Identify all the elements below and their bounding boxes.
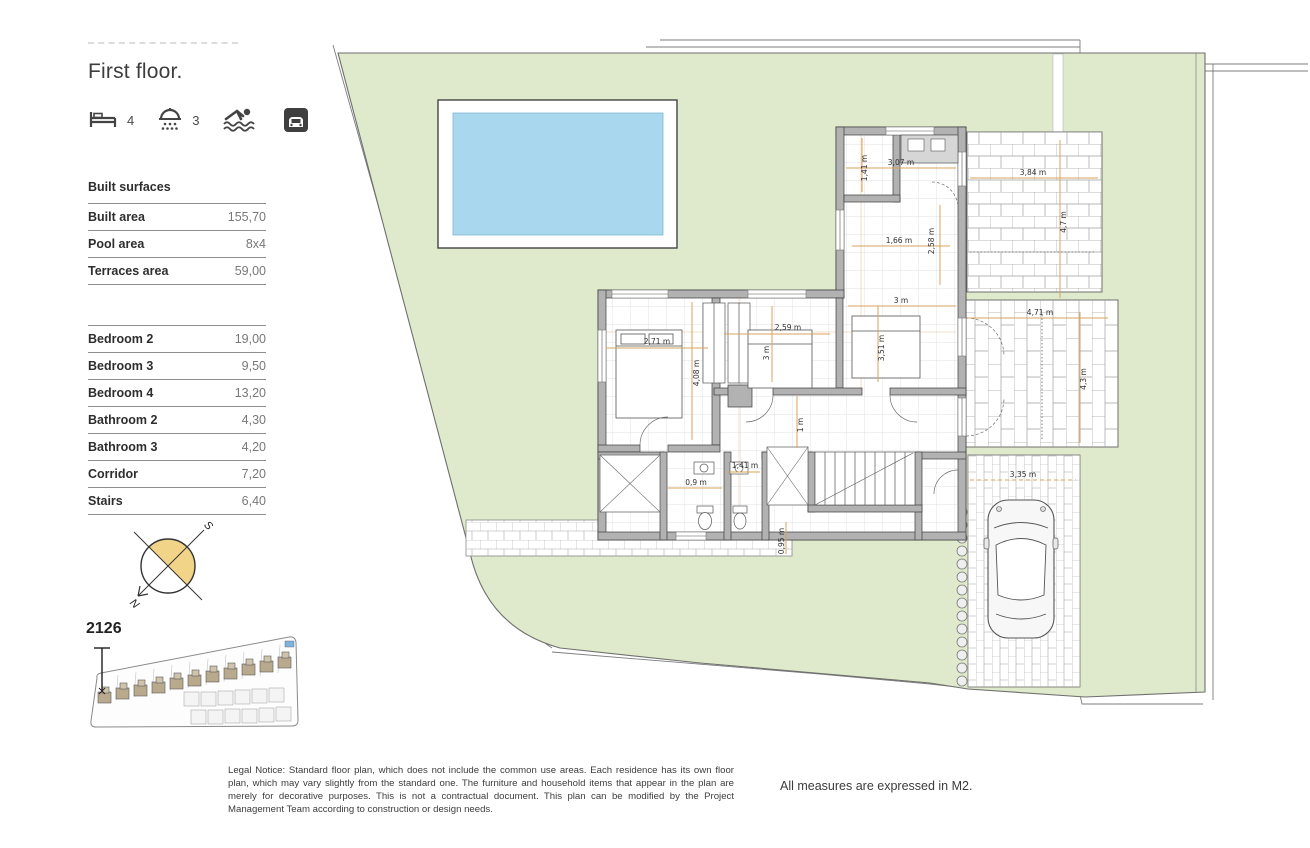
dimension-label: 4,7 m xyxy=(1059,211,1068,233)
row-value: 6,40 xyxy=(242,494,266,508)
dimension-label: 4,3 m xyxy=(1079,368,1088,390)
table-row: Corridor 7,20 xyxy=(88,460,266,487)
table-row: Terraces area 59,00 xyxy=(88,257,266,285)
dimension-label: 3 m xyxy=(762,346,771,360)
table-row: Bedroom 3 9,50 xyxy=(88,352,266,379)
boundary-wall-strip xyxy=(1053,54,1063,132)
row-label: Bedroom 4 xyxy=(88,386,153,400)
shower-icon xyxy=(157,106,183,134)
table-row: Bedroom 2 19,00 xyxy=(88,325,266,352)
row-label: Bathroom 3 xyxy=(88,440,157,454)
table-row: Pool area 8x4 xyxy=(88,230,266,257)
row-value: 4,30 xyxy=(242,413,266,427)
table-row: Bathroom 3 4,20 xyxy=(88,433,266,460)
compass-rose: S N xyxy=(118,514,222,624)
row-value: 4,20 xyxy=(242,440,266,454)
dimension-label: 1,41 m xyxy=(860,155,869,181)
built-surfaces-table: Built area 155,70 Pool area 8x4 Terraces… xyxy=(88,203,266,285)
table-row: Bedroom 4 13,20 xyxy=(88,379,266,406)
row-label: Built area xyxy=(88,210,145,224)
row-value: 7,20 xyxy=(242,467,266,481)
garage-icon xyxy=(283,107,309,133)
row-label: Bedroom 3 xyxy=(88,359,153,373)
row-value: 8x4 xyxy=(246,237,266,251)
scan-artifact-line xyxy=(88,42,238,44)
dimension-label: 2,71 m xyxy=(644,337,670,346)
legal-notice: Legal Notice: Standard floor plan, which… xyxy=(228,765,734,816)
row-value: 59,00 xyxy=(235,264,266,278)
row-value: 9,50 xyxy=(242,359,266,373)
pool-water xyxy=(453,113,663,235)
bathrooms-count: 3 xyxy=(192,113,199,128)
bedrooms-count: 4 xyxy=(127,113,134,128)
dimension-label: 4,08 m xyxy=(692,360,701,386)
row-label: Bedroom 2 xyxy=(88,332,153,346)
dimension-label: 3 m xyxy=(894,296,908,305)
terrace-top xyxy=(967,132,1102,292)
dimension-label: 1,41 m xyxy=(732,461,758,470)
dimension-label: 2,58 m xyxy=(927,228,936,254)
compass-north-label: N xyxy=(127,597,141,611)
stairs xyxy=(815,452,915,505)
row-value: 155,70 xyxy=(228,210,266,224)
dimension-label: 1,66 m xyxy=(886,236,912,245)
dimension-label: 0,9 m xyxy=(685,478,707,487)
site-pool-marker xyxy=(285,641,294,647)
dimension-label: 1 m xyxy=(796,418,805,432)
site-plan xyxy=(78,634,314,738)
dimension-label: 3,51 m xyxy=(877,335,886,361)
bed-icon xyxy=(88,108,118,132)
swimming-pool-icon xyxy=(222,107,256,133)
dimension-label: 3,84 m xyxy=(1020,168,1046,177)
row-label: Terraces area xyxy=(88,264,168,278)
table-row: Bathroom 2 4,30 xyxy=(88,406,266,433)
car xyxy=(984,500,1058,638)
measures-note: All measures are expressed in M2. xyxy=(780,779,972,793)
row-label: Bathroom 2 xyxy=(88,413,157,427)
dimension-label: 4,71 m xyxy=(1027,308,1053,317)
dimension-label: 3,07 m xyxy=(888,158,914,167)
rooms-table: Bedroom 2 19,00 Bedroom 3 9,50 Bedroom 4… xyxy=(88,325,266,515)
dimension-label: 3,35 m xyxy=(1010,470,1036,479)
built-surfaces-heading: Built surfaces xyxy=(88,180,171,194)
row-value: 19,00 xyxy=(235,332,266,346)
pool xyxy=(438,100,677,248)
table-row: Stairs 6,40 xyxy=(88,487,266,515)
dimension-label: 0,95 m xyxy=(777,528,786,554)
table-row: Built area 155,70 xyxy=(88,203,266,230)
dimension-label: 2,59 m xyxy=(775,323,801,332)
row-value: 13,20 xyxy=(235,386,266,400)
floor-plan-drawing: 3,07 m 1,41 m 3,84 m 4,7 m 1,66 m 2,58 m… xyxy=(330,10,1310,720)
row-label: Stairs xyxy=(88,494,123,508)
page-title: First floor. xyxy=(88,60,183,84)
feature-icons-row: 4 3 xyxy=(88,104,309,136)
row-label: Pool area xyxy=(88,237,144,251)
row-label: Corridor xyxy=(88,467,138,481)
